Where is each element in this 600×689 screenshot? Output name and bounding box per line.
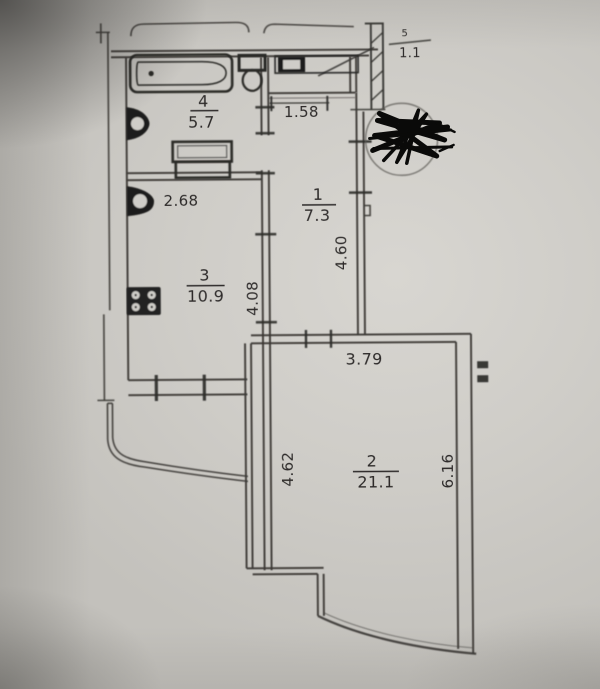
balcony-area: 1.1 (399, 46, 421, 61)
room3-area: 10.9 (187, 287, 224, 306)
floor-plan-drawing: 4 5.7 3 10.9 1 7.3 2 21.1 5 1.1 2.68 1.5… (0, 0, 600, 689)
bathtub-icon (130, 54, 232, 92)
dim-hall-top-width: 1.58 (284, 103, 319, 121)
hatched-wall-icon (365, 23, 432, 109)
room4-area: 5.7 (188, 113, 215, 132)
room1-area: 7.3 (304, 206, 331, 225)
kitchen-sink-icon (127, 186, 154, 216)
dim-bath-width: 2.68 (163, 192, 198, 210)
floor-plan-photo: 4 5.7 3 10.9 1 7.3 2 21.1 5 1.1 2.68 1.5… (0, 0, 600, 689)
room4-number: 4 (198, 92, 209, 111)
stove-icon (127, 287, 161, 315)
dim-living-left-height: 4.62 (279, 452, 297, 487)
washbasin-icon (126, 107, 149, 140)
balcony-number: 5 (401, 28, 408, 39)
dim-kitchen-height: 4.08 (244, 281, 262, 316)
room2-number: 2 (366, 451, 377, 470)
dim-living-top-width: 3.79 (345, 349, 382, 368)
room3-number: 3 (199, 266, 210, 285)
redaction-scribble-icon (365, 103, 455, 176)
room1-number: 1 (313, 185, 324, 204)
closet-shelf-icon (275, 56, 358, 74)
dim-hall-height: 4.60 (332, 235, 350, 270)
dim-living-right-height: 6.16 (439, 453, 457, 488)
room2-area: 21.1 (357, 472, 394, 491)
